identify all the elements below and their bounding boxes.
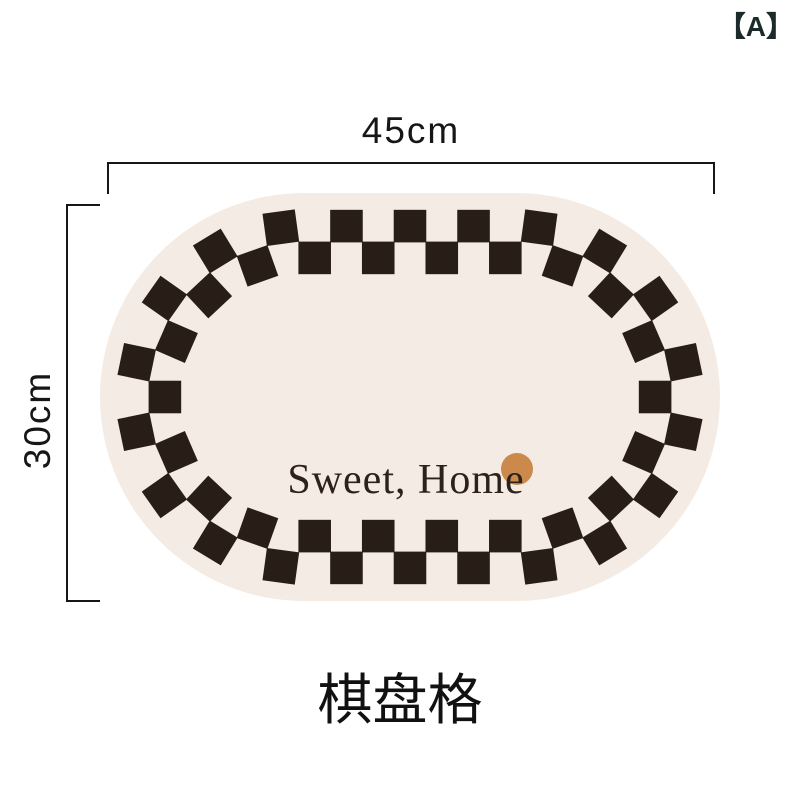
checkerboard-mat-image: Sweet, Home — [100, 193, 720, 601]
width-dimension-value: 45cm — [107, 110, 715, 152]
variant-label: 【A】 — [718, 5, 794, 45]
sweet-home-text: Sweet, Home — [287, 457, 524, 503]
height-dimension-value: 30cm — [17, 350, 59, 490]
height-dimension-line — [66, 204, 100, 602]
width-dimension-line — [107, 162, 715, 194]
caption-text: 棋盘格 — [0, 655, 800, 735]
product-image[interactable]: 【A】 45cm 30cm Sweet, Home 棋盘格 — [0, 0, 800, 800]
